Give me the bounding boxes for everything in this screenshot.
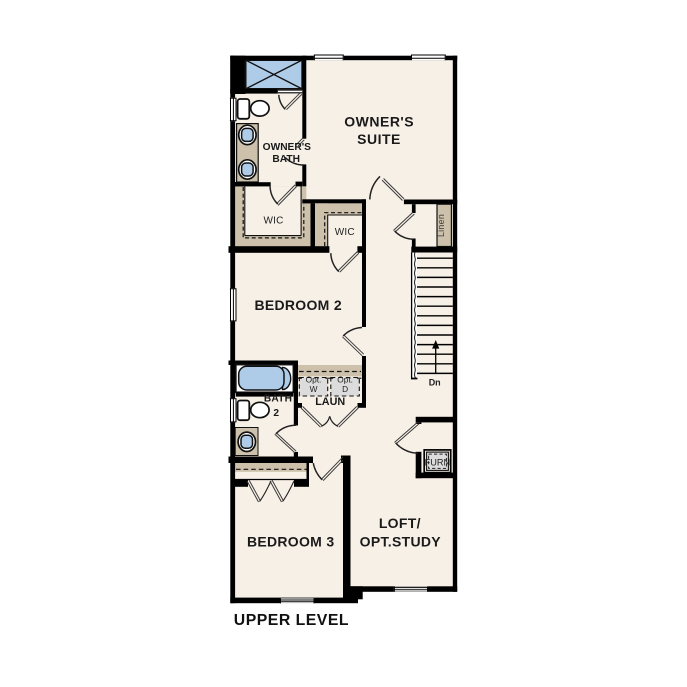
svg-text:OPT.STUDY: OPT.STUDY <box>360 533 442 549</box>
svg-text:BEDROOM 3: BEDROOM 3 <box>247 534 335 550</box>
svg-text:2: 2 <box>273 408 279 419</box>
svg-text:WIC: WIC <box>335 227 355 238</box>
svg-text:OWNER'S: OWNER'S <box>263 142 311 153</box>
svg-text:FURN: FURN <box>425 458 451 468</box>
svg-text:Dn: Dn <box>429 378 441 388</box>
svg-text:OWNER'S: OWNER'S <box>344 113 414 129</box>
svg-text:LAUN: LAUN <box>315 396 345 408</box>
svg-text:D: D <box>342 384 348 394</box>
svg-text:LOFT/: LOFT/ <box>379 515 421 531</box>
svg-text:SUITE: SUITE <box>357 131 401 147</box>
svg-text:W: W <box>310 384 318 394</box>
svg-text:UPPER LEVEL: UPPER LEVEL <box>234 612 349 629</box>
svg-text:WIC: WIC <box>263 216 283 227</box>
svg-text:BATH: BATH <box>272 154 300 165</box>
svg-text:Linen: Linen <box>436 214 446 237</box>
svg-text:BATH: BATH <box>264 393 292 404</box>
svg-text:BEDROOM 2: BEDROOM 2 <box>254 297 342 313</box>
